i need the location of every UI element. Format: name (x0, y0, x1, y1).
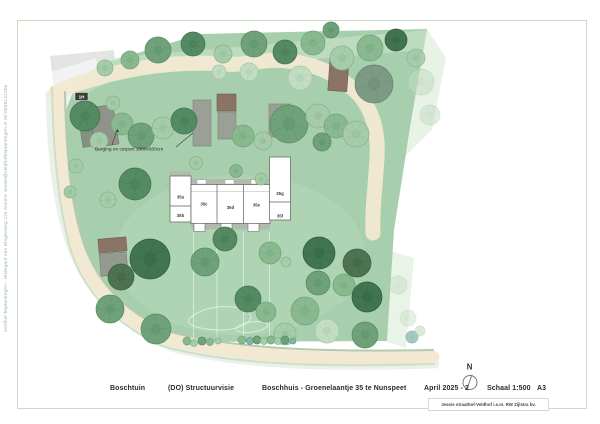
tree (343, 121, 369, 147)
tree (141, 314, 171, 344)
tree (108, 264, 134, 290)
tree (313, 133, 331, 151)
north-label: N (467, 363, 473, 372)
tree (256, 302, 276, 322)
tree (253, 336, 261, 344)
unit-label-35d: 35d (227, 205, 235, 210)
tree (214, 45, 232, 63)
tree (267, 336, 275, 344)
tree (121, 51, 139, 69)
tree (408, 69, 434, 95)
title-project: Boschtuin (110, 385, 145, 392)
tree (181, 32, 205, 56)
tree (240, 63, 258, 81)
tree (241, 31, 267, 57)
site-plan: 35a 35b 35c 35d 35e 35f 35g Berging en c… (0, 0, 600, 424)
tree (255, 173, 267, 185)
tree (288, 66, 312, 90)
tree (183, 337, 191, 345)
unit-label-35f: 35f (277, 214, 284, 219)
tree (420, 105, 440, 125)
tree (407, 49, 425, 67)
unit-label-35e: 35e (253, 203, 261, 208)
tree (323, 22, 339, 38)
tree (306, 271, 330, 295)
tree (281, 336, 289, 344)
tree (213, 227, 237, 251)
tree (100, 192, 116, 208)
unit-label-35c: 35c (200, 202, 208, 207)
titlebar: Boschtuin (DO) Structuurvisie Boschhuis … (0, 382, 600, 396)
tree (343, 249, 371, 277)
tree (352, 322, 378, 348)
credit-box: Jessie straathof-Veldhof i.s.m. RW Zijls… (428, 398, 549, 411)
tree (290, 338, 296, 344)
tree (171, 108, 197, 134)
tree (96, 295, 124, 323)
title-sheet: A3 (537, 385, 546, 392)
title-address: Boschhuis - Groenelaantje 35 te Nunspeet (262, 385, 406, 392)
tree (69, 159, 83, 173)
tree (261, 338, 268, 345)
tree (212, 65, 226, 79)
unit-label-35a: 35a (177, 195, 185, 200)
tree (385, 29, 407, 51)
tree (259, 242, 281, 264)
tree (207, 339, 214, 346)
tree (330, 46, 354, 70)
tree (198, 337, 206, 345)
tree (415, 326, 425, 336)
tree (315, 319, 339, 343)
tree (389, 276, 407, 294)
tree (273, 40, 297, 64)
tree (128, 123, 154, 149)
tree (281, 257, 291, 267)
unit-label-35g: 35g (276, 191, 284, 196)
tree (355, 65, 393, 103)
tree (190, 157, 203, 170)
tree (191, 248, 219, 276)
tree (106, 96, 120, 110)
tree (400, 310, 416, 326)
plan-badge-text: 1H (79, 95, 85, 100)
tree (357, 35, 383, 61)
credit-text: Jessie straathof-Veldhof i.s.m. RW Zijls… (441, 402, 536, 407)
tree (70, 101, 100, 131)
tree (291, 297, 319, 325)
tree (301, 31, 325, 55)
tree (119, 168, 151, 200)
tree (333, 274, 355, 296)
tree (64, 186, 76, 198)
tree (215, 338, 221, 344)
tree (191, 340, 198, 347)
tree (247, 338, 254, 345)
tree (275, 338, 282, 345)
tree (232, 125, 254, 147)
plan-badge: 1H (75, 93, 88, 101)
tree (303, 237, 335, 269)
tree (230, 165, 243, 178)
drawing-sheet: { "page": { "side_text": "Veldhof beplan… (0, 0, 600, 424)
tree (270, 105, 308, 143)
tree (130, 239, 170, 279)
tree (145, 37, 171, 63)
title-scale: Schaal 1:500 (487, 385, 531, 392)
tree (97, 60, 113, 76)
tree (352, 282, 382, 312)
unit-label-35b: 35b (177, 213, 185, 218)
title-phase: (DO) Structuurvisie (168, 385, 234, 392)
tree (238, 336, 246, 344)
carport-annotation-text: Berging en carport 1000x600cm (95, 147, 163, 153)
title-date: April 2025 - 2 (424, 385, 469, 392)
tree (254, 132, 272, 150)
